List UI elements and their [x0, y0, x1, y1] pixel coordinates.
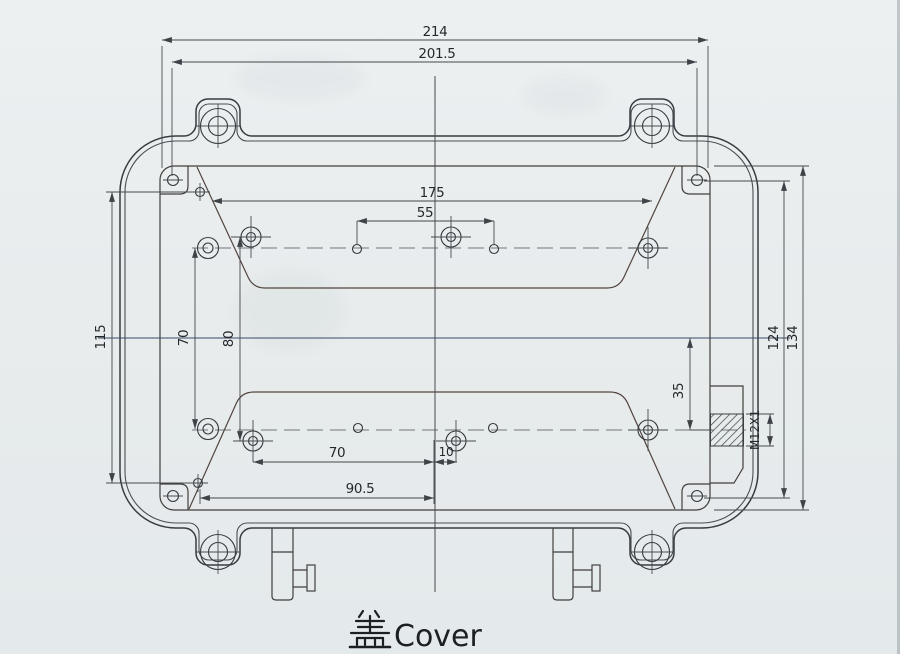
dim-bottom-hole-span: 70 — [253, 445, 434, 462]
dim-boss-top-width: 175 — [212, 185, 652, 201]
cover-body-outline — [120, 99, 758, 565]
lug-boss-bottom-right — [630, 530, 674, 574]
dim-label-124: 124 — [766, 326, 782, 351]
dimensions: 214 201.5 115 175 55 70 80 — [93, 24, 809, 510]
gland-left-nozzle-cap — [307, 565, 315, 591]
lug-boss-bottom-left — [196, 530, 240, 574]
gland-left-nozzle — [293, 570, 307, 587]
dim-label-35: 35 — [671, 383, 687, 400]
dim-bottom-offset: 10 — [434, 445, 457, 462]
dim-thread-offset: 35 — [671, 338, 712, 430]
dim-label-134: 134 — [785, 326, 801, 351]
dim-label-55: 55 — [417, 205, 434, 221]
dim-thread-spec: M12X1 — [746, 410, 774, 450]
dim-label-80: 80 — [221, 331, 237, 348]
scan-ghost-marks — [235, 54, 607, 350]
dim-label-70-left: 70 — [176, 330, 192, 347]
title-en-text: Cover — [394, 619, 483, 654]
lug-boss-top-left — [196, 104, 240, 148]
gland-right — [553, 528, 600, 600]
title-cn-glyph-gai — [350, 611, 390, 647]
boss-band-bottom — [189, 392, 675, 509]
drawing-title: Cover — [350, 611, 483, 654]
dim-right-hole-height: 124 — [704, 181, 790, 498]
dim-bottom-span: 90.5 — [200, 440, 434, 504]
top-hole-row — [198, 216, 669, 269]
centerlines — [98, 76, 790, 592]
gland-right-nozzle — [573, 570, 592, 587]
bottom-protrusions — [272, 528, 600, 600]
dim-label-90-5: 90.5 — [346, 481, 375, 497]
lug-boss-top-right — [630, 104, 674, 148]
bottom-hole-row — [198, 409, 669, 462]
body-inner-line — [125, 104, 753, 560]
cover-drawing: 214 201.5 115 175 55 70 80 — [0, 0, 900, 654]
dim-label-201-5: 201.5 — [418, 46, 455, 62]
body-outer-line — [120, 99, 758, 565]
gland-right-nozzle-cap — [592, 565, 600, 591]
dim-label-214: 214 — [423, 24, 448, 40]
dim-top-hole-span: 55 — [357, 205, 494, 244]
dim-label-175: 175 — [420, 185, 445, 201]
dim-cross-hole-pitch: 80 — [221, 237, 240, 441]
thread-boss-section — [710, 386, 744, 483]
dim-label-m12x1: M12X1 — [748, 410, 762, 450]
dim-label-10: 10 — [439, 445, 454, 459]
gland-left — [272, 528, 315, 600]
dim-label-115: 115 — [93, 325, 109, 350]
drawing-sheet: 214 201.5 115 175 55 70 80 — [0, 0, 900, 654]
dim-label-70-bottom: 70 — [329, 445, 346, 461]
